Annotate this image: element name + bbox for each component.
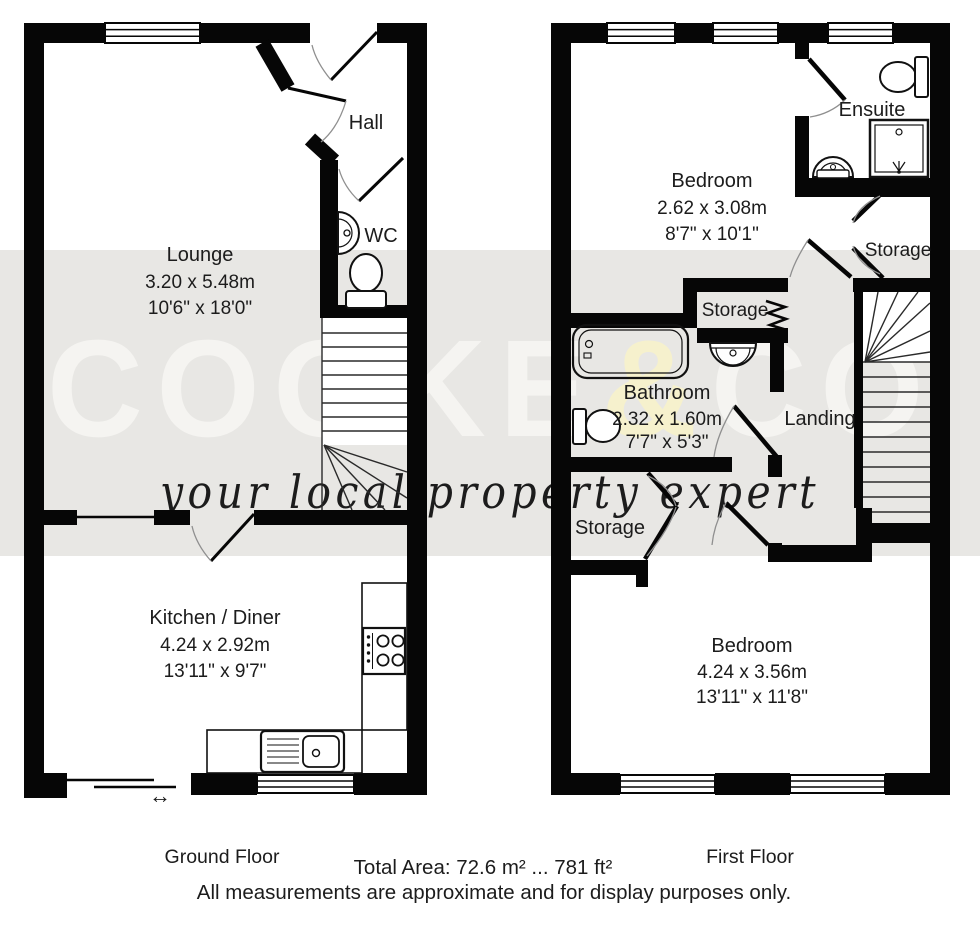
window-icon — [790, 775, 885, 793]
window-icon — [620, 775, 715, 793]
footer: Ground Floor Total Area: 72.6 m² ... 781… — [165, 846, 795, 904]
ensuite-sink-icon — [813, 157, 853, 178]
svg-text:Kitchen / Diner: Kitchen / Diner — [149, 607, 281, 629]
svg-text:7'7" x 5'3": 7'7" x 5'3" — [625, 432, 708, 453]
wc-sink-icon — [338, 212, 359, 254]
room-label-wc: WC — [364, 225, 397, 247]
ensuite-toilet-icon — [880, 57, 928, 97]
svg-text:Lounge: Lounge — [167, 244, 234, 266]
room-label-hall: Hall — [349, 112, 383, 134]
shower-icon — [870, 120, 928, 177]
room-label-bedroom2: Bedroom 4.24 x 3.56m 13'11" x 11'8" — [696, 635, 808, 708]
hob-icon — [363, 628, 405, 674]
svg-text:13'11" x 11'8": 13'11" x 11'8" — [696, 687, 808, 708]
window-icon — [105, 23, 200, 43]
sliding-patio-door-icon: ↔ — [67, 780, 176, 808]
svg-text:10'6" x 18'0": 10'6" x 18'0" — [148, 298, 252, 319]
svg-text:4.24 x 2.92m: 4.24 x 2.92m — [160, 635, 270, 656]
svg-text:8'7" x 10'1": 8'7" x 10'1" — [665, 224, 759, 245]
ground-floor-title: Ground Floor — [165, 846, 280, 868]
wc-door-icon — [339, 158, 403, 201]
room-label-storage-bottom: Storage — [575, 517, 645, 539]
total-area-text: Total Area: 72.6 m² ... 781 ft² — [354, 856, 613, 879]
wc-toilet-icon — [346, 254, 386, 308]
window-icon — [607, 23, 675, 43]
room-label-bedroom1: Bedroom 2.62 x 3.08m 8'7" x 10'1" — [657, 170, 767, 245]
slider-arrow-icon: ↔ — [149, 783, 171, 808]
svg-text:Bedroom: Bedroom — [671, 170, 752, 192]
svg-text:3.20 x 5.48m: 3.20 x 5.48m — [145, 272, 255, 293]
svg-text:2.32 x 1.60m: 2.32 x 1.60m — [612, 409, 722, 430]
disclaimer-text: All measurements are approximate and for… — [197, 881, 791, 904]
floorplan-canvas: COOKE&CO your local property expert — [0, 0, 980, 934]
floorplan-page: COOKE&CO your local property expert — [0, 0, 980, 934]
svg-text:4.24 x 3.56m: 4.24 x 3.56m — [697, 662, 807, 683]
room-label-kitchen: Kitchen / Diner 4.24 x 2.92m 13'11" x 9'… — [149, 607, 281, 682]
svg-text:Bedroom: Bedroom — [711, 635, 792, 657]
room-label-storage-mid: Storage — [702, 300, 769, 321]
room-label-bathroom: Bathroom 2.32 x 1.60m 7'7" x 5'3" — [612, 382, 722, 453]
kitchen-sink-icon — [261, 731, 344, 772]
svg-text:13'11" x 9'7": 13'11" x 9'7" — [164, 661, 267, 682]
room-label-ensuite: Ensuite — [839, 99, 906, 121]
room-label-storage-top: Storage — [865, 240, 932, 261]
window-icon — [713, 23, 778, 43]
watermark: COOKE&CO your local property expert — [0, 250, 980, 556]
svg-text:2.62 x 3.08m: 2.62 x 3.08m — [657, 198, 767, 219]
room-label-landing: Landing — [784, 408, 855, 430]
brand-watermark-text: COOKE&CO — [47, 312, 937, 466]
svg-text:Bathroom: Bathroom — [624, 382, 711, 404]
front-door-icon — [312, 32, 377, 80]
first-floor-title: First Floor — [706, 846, 794, 868]
window-icon — [828, 23, 893, 43]
lounge-door-icon — [288, 88, 346, 142]
window-icon — [257, 775, 354, 793]
